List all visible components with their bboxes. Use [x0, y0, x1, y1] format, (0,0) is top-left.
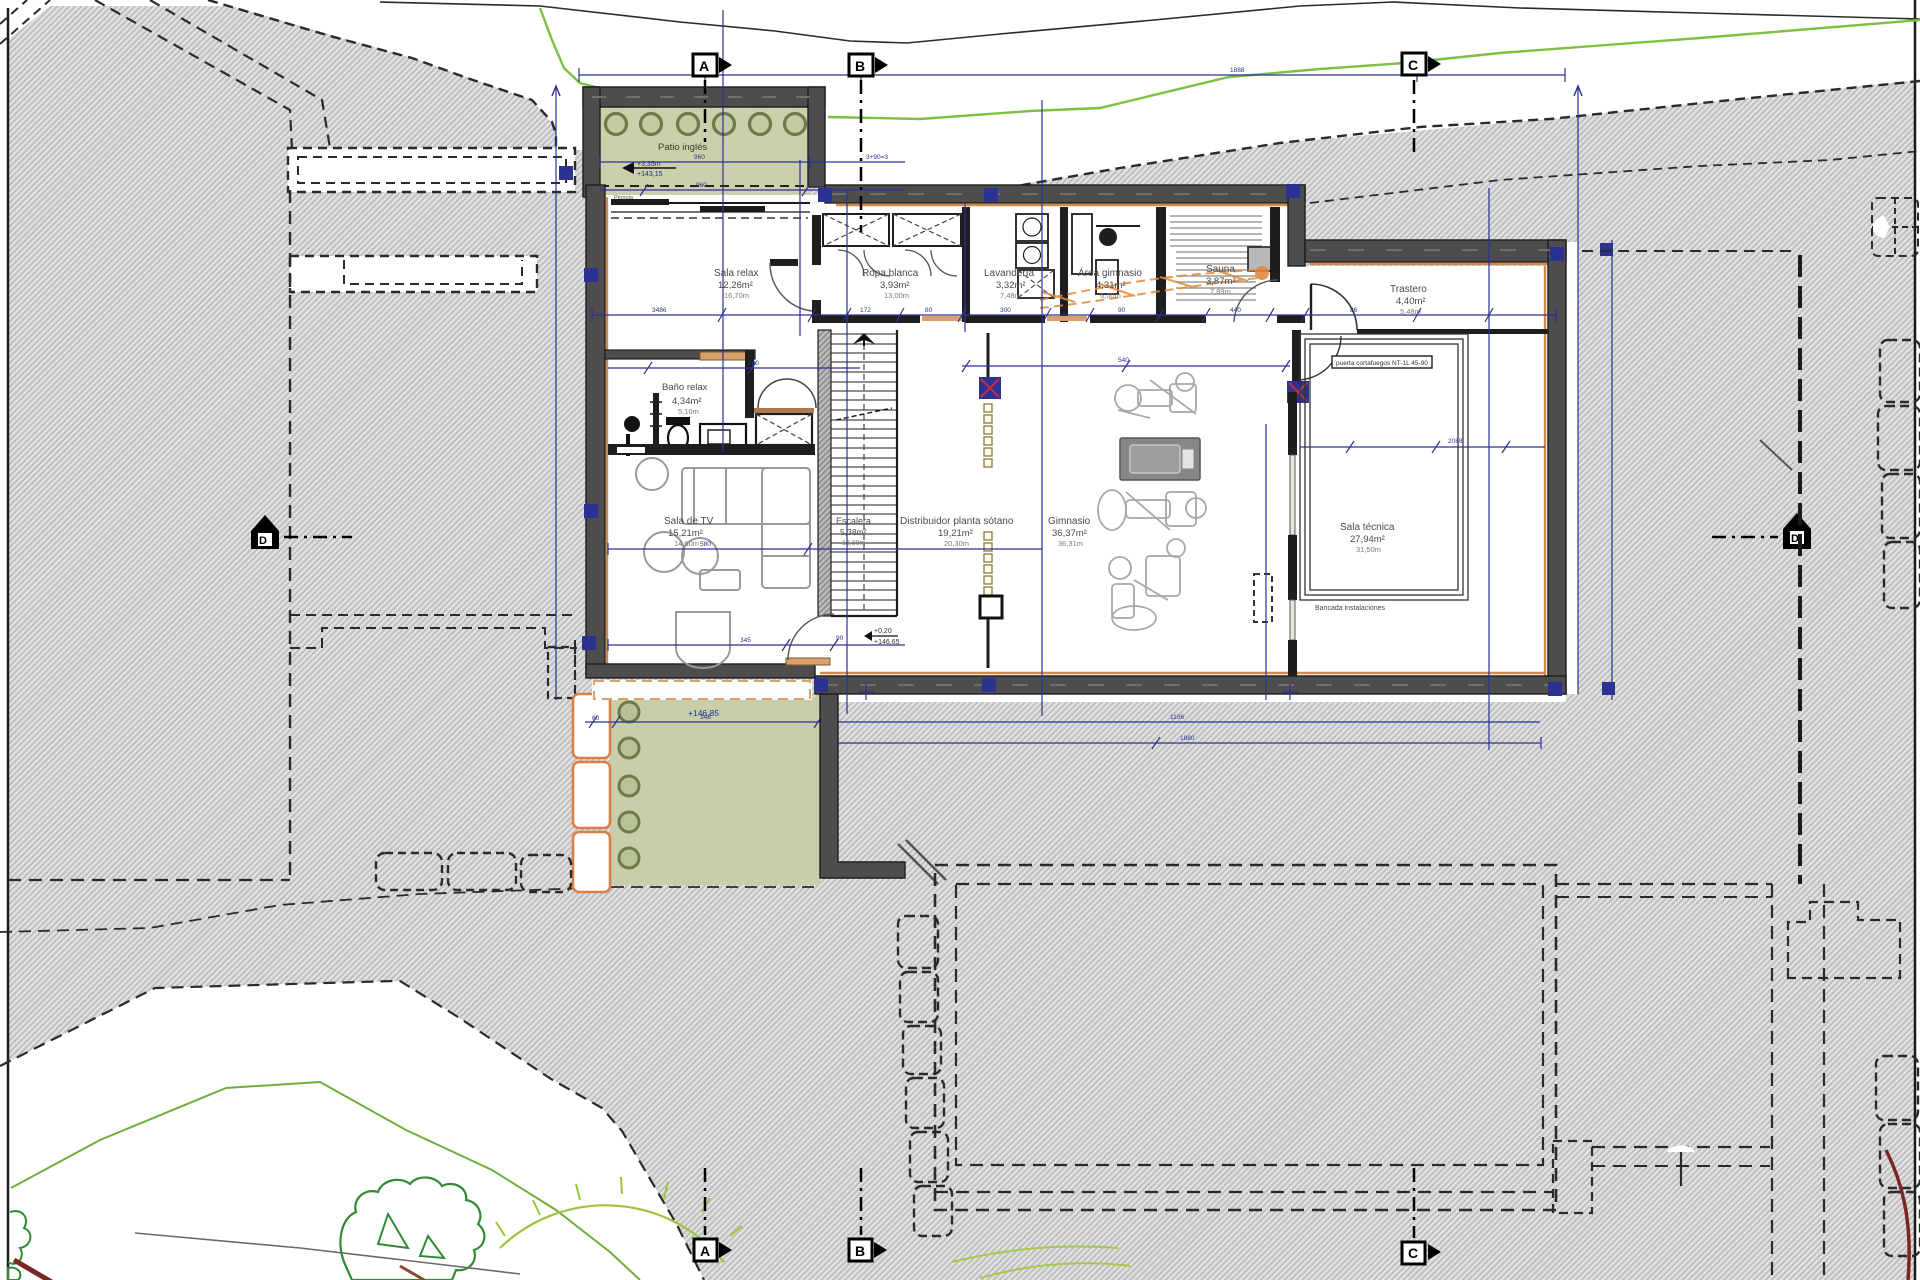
svg-text:5,38m²: 5,38m² — [840, 527, 867, 537]
svg-text:Sala técnica: Sala técnica — [1340, 522, 1395, 533]
svg-text:1888: 1888 — [1230, 67, 1245, 74]
svg-text:345: 345 — [740, 637, 751, 644]
svg-text:B: B — [855, 1243, 865, 1259]
svg-text:7,89m: 7,89m — [1210, 287, 1231, 296]
svg-text:Patio inglés: Patio inglés — [658, 142, 707, 153]
svg-text:Distribuidor planta sótano: Distribuidor planta sótano — [900, 516, 1014, 527]
svg-text:D: D — [1791, 533, 1799, 545]
svg-text:3486: 3486 — [652, 307, 667, 314]
svg-text:960: 960 — [694, 154, 705, 161]
svg-text:960: 960 — [696, 182, 707, 189]
svg-text:3+90=3: 3+90=3 — [866, 154, 888, 161]
svg-text:Ropa blanca: Ropa blanca — [862, 268, 919, 279]
svg-text:4,34m²: 4,34m² — [672, 396, 702, 407]
svg-text:19,21m²: 19,21m² — [938, 528, 973, 539]
svg-text:A: A — [700, 1243, 710, 1259]
svg-text:60: 60 — [592, 715, 600, 722]
svg-text:13,00m: 13,00m — [884, 291, 909, 300]
svg-text:Escalera: Escalera — [836, 516, 871, 526]
svg-text:Lavandería: Lavandería — [984, 268, 1034, 279]
svg-text:Pérgola: Pérgola — [614, 195, 634, 201]
svg-text:B: B — [855, 58, 865, 74]
svg-text:580: 580 — [700, 541, 711, 548]
svg-text:Baño relax: Baño relax — [662, 382, 708, 393]
svg-text:Sala de TV: Sala de TV — [664, 516, 714, 527]
svg-text:Gimnasio: Gimnasio — [1048, 516, 1091, 527]
svg-text:C: C — [1408, 1245, 1418, 1261]
svg-text:348: 348 — [700, 714, 711, 721]
svg-text:4,40m²: 4,40m² — [1396, 296, 1426, 307]
svg-text:440: 440 — [1230, 307, 1241, 314]
svg-text:3,32m²: 3,32m² — [996, 280, 1026, 291]
svg-text:14,60m: 14,60m — [674, 539, 699, 548]
svg-text:540: 540 — [1118, 357, 1129, 364]
svg-text:36,37m²: 36,37m² — [1052, 528, 1087, 539]
svg-text:36,31m: 36,31m — [1058, 539, 1083, 548]
svg-text:6,00m: 6,00m — [1100, 291, 1121, 300]
svg-text:80: 80 — [925, 307, 933, 314]
svg-text:300: 300 — [1000, 307, 1011, 314]
svg-text:280: 280 — [748, 360, 759, 367]
svg-text:31,50m: 31,50m — [1356, 545, 1381, 554]
svg-text:16,70m: 16,70m — [724, 291, 749, 300]
svg-text:Sala relax: Sala relax — [714, 268, 758, 279]
svg-text:2088: 2088 — [1448, 438, 1463, 445]
svg-text:Bancada instalaciones: Bancada instalaciones — [1315, 605, 1386, 612]
svg-text:90: 90 — [1118, 307, 1126, 314]
svg-text:3,93m²: 3,93m² — [880, 280, 910, 291]
svg-text:3,87m²: 3,87m² — [1206, 276, 1236, 287]
svg-text:+0,20: +0,20 — [874, 628, 892, 635]
svg-text:27,94m²: 27,94m² — [1350, 534, 1385, 545]
svg-text:90: 90 — [836, 635, 844, 642]
svg-text:1106: 1106 — [1170, 714, 1184, 721]
svg-text:4,31m²: 4,31m² — [1096, 280, 1126, 291]
svg-text:+143,15: +143,15 — [637, 171, 663, 178]
svg-text:1880: 1880 — [1180, 735, 1195, 742]
svg-text:86: 86 — [1350, 307, 1358, 314]
svg-text:Trastero: Trastero — [1390, 284, 1427, 295]
svg-text:Área gimnasio: Área gimnasio — [1078, 266, 1142, 279]
svg-text:20,30m: 20,30m — [944, 539, 969, 548]
svg-text:15,21m²: 15,21m² — [668, 528, 703, 539]
svg-text:D: D — [259, 535, 267, 547]
svg-text:C: C — [1408, 57, 1418, 73]
svg-text:A: A — [699, 58, 709, 74]
svg-text:5,10m: 5,10m — [678, 407, 699, 416]
svg-text:7,48m: 7,48m — [1000, 291, 1021, 300]
svg-text:Sauna: Sauna — [1206, 264, 1235, 275]
svg-text:172: 172 — [860, 307, 871, 314]
svg-text:puerta cortafuegos NT-1L 45-90: puerta cortafuegos NT-1L 45-90 — [1336, 360, 1428, 367]
svg-text:13,30m: 13,30m — [842, 540, 866, 547]
